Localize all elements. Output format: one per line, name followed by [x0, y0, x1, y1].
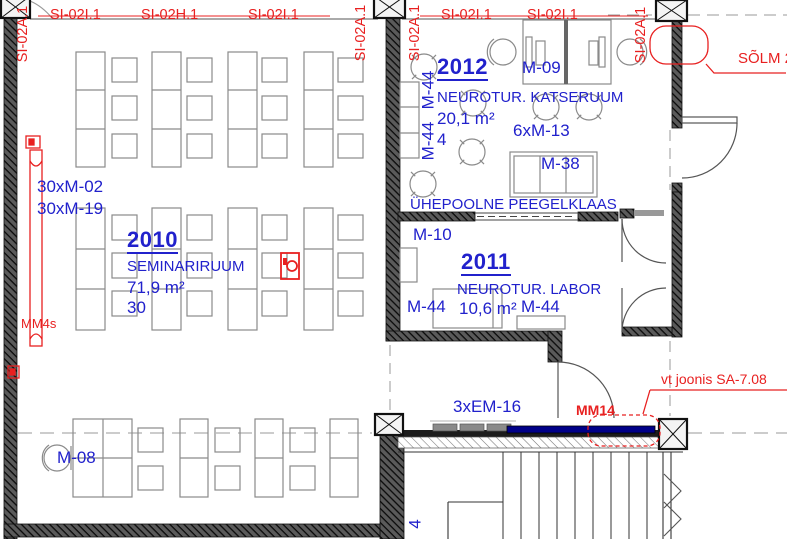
furniture-count-30xm19: 30xM-19 — [37, 200, 103, 217]
furniture-label-m44-left: M-44 — [407, 298, 446, 315]
furniture-label-m44-wall: M-44 — [420, 122, 437, 161]
room-name-2010: SEMINARIRUUM — [127, 259, 245, 274]
section-tag: SI-02I.1 — [50, 8, 101, 23]
section-tag-vertical: SI-02A.1 — [16, 6, 31, 62]
section-tag-vertical: SI-02A.1 — [354, 5, 369, 61]
furniture-label-6xm13: 6xM-13 — [513, 122, 570, 139]
room-capacity-2010: 30 — [127, 299, 146, 316]
stairs — [398, 452, 683, 539]
room-capacity-2012: 4 — [437, 131, 446, 148]
room-name-2012: NEUROTUR. KATSERUUM — [437, 90, 623, 105]
furniture-label-3xem16: 3xEM-16 — [453, 398, 521, 415]
stair-direction-arrow — [664, 474, 681, 508]
section-tag: SI-02I.1 — [441, 8, 492, 23]
stair-treads — [503, 452, 647, 539]
furniture-label-m44-wall: M-44 — [420, 71, 437, 110]
room-number-2010: 2010 — [127, 229, 178, 254]
section-tag-vertical: SI-02A.1 — [408, 5, 423, 61]
mm14-label: MM14 — [576, 403, 615, 417]
glass-partition — [475, 213, 578, 220]
electrical-strips — [430, 421, 516, 431]
section-tag: SI-02H.1 — [141, 8, 198, 23]
room-area-2010: 71,9 m² — [127, 279, 185, 296]
columns — [1, 0, 687, 449]
room-number-2012: 2012 — [437, 56, 488, 81]
furniture-label-m44-right: M-44 — [521, 298, 560, 315]
room-area-2012: 20,1 m² — [437, 110, 495, 127]
glass-note: ÜHEPOOLNE PEEGELKLAAS — [410, 197, 617, 212]
floor-box-symbol — [281, 253, 299, 279]
section-tag-vertical: SI-02A.1 — [634, 7, 649, 63]
stair-label-fragment: 4 — [407, 519, 424, 528]
desk-grid-room-2010 — [76, 52, 363, 330]
furniture-label-m38: M-38 — [541, 155, 580, 172]
solm-callout: SÕLM 2 — [738, 51, 787, 66]
vt-joonis-callout: vt joonis SA-7.08 — [661, 372, 767, 386]
door-arc-lower — [622, 288, 666, 332]
section-tag: SI-02I.1 — [248, 8, 299, 23]
section-tag: SI-02I.1 — [527, 8, 578, 23]
mm4s-label: MM4s — [21, 317, 56, 330]
door-arc-corridor — [682, 123, 737, 178]
floorplan-linework — [0, 0, 787, 539]
room-name-2011: NEUROTUR. LABOR — [457, 282, 601, 297]
mm14-bar — [507, 426, 655, 433]
door-arc-upper — [622, 219, 666, 263]
furniture-count-30xm02: 30xM-02 — [37, 178, 103, 195]
floorplan-canvas: SI-02I.1 SI-02H.1 SI-02I.1 SI-02I.1 SI-0… — [0, 0, 787, 539]
room-number-2011: 2011 — [461, 251, 511, 276]
furniture-label-m08: M-08 — [57, 449, 96, 466]
furniture-label-m10: M-10 — [413, 226, 452, 243]
furniture-label-m09: M-09 — [522, 59, 561, 76]
room-area-2011: 10,6 m² — [459, 300, 517, 317]
